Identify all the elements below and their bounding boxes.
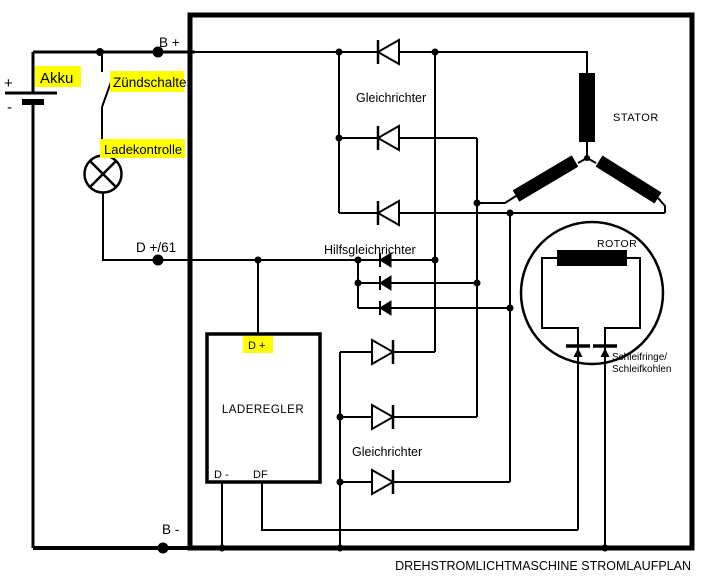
label-schleifkohlen: Schleifkohlen	[612, 364, 671, 375]
diode-icon	[378, 201, 399, 225]
diode-icon	[378, 40, 399, 64]
label-akku: Akku	[40, 70, 73, 87]
junction-dot	[336, 49, 343, 56]
junction-dot	[337, 545, 344, 552]
lamp-cross	[90, 161, 116, 187]
junction-dot	[602, 545, 609, 552]
label-schleifringe: Schleifringe/	[612, 352, 667, 363]
switch-blade	[102, 82, 111, 107]
junction-dot	[507, 210, 514, 217]
diode-icon	[372, 405, 393, 429]
label-d-plus-61: D +/61	[136, 240, 176, 255]
label-battery-plus: +	[4, 75, 13, 92]
label-regulator-df: DF	[253, 469, 268, 481]
small-diode-icon	[380, 276, 391, 290]
label-ladekontrolle: Ladekontrolle	[104, 142, 182, 157]
label-zuendschalter: Zündschalter	[113, 75, 192, 90]
stator-winding-right	[599, 161, 658, 198]
rectifier-bottom	[340, 340, 510, 548]
terminal-dot-b-minus	[158, 543, 169, 554]
junction-dot	[337, 414, 344, 421]
label-hilfsgleichrichter: Hilfsgleichrichter	[324, 243, 416, 257]
junction-dot	[355, 280, 362, 287]
circuit-diagram: B + Akku + - Zündschalter Ladekontrolle …	[0, 0, 705, 577]
battery-symbol	[5, 52, 57, 548]
charge-lamp-icon	[85, 156, 122, 193]
diode-icon	[378, 126, 399, 150]
label-gleichrichter-top: Gleichrichter	[356, 91, 426, 105]
label-regulator-d-plus: D +	[248, 340, 265, 352]
junction-dot	[255, 257, 262, 264]
wire-df-to-rotor	[262, 482, 578, 530]
aux-rectifier	[158, 253, 510, 315]
label-b-minus: B -	[162, 522, 179, 537]
label-laderegler: LADEREGLER	[222, 404, 304, 416]
label-regulator-d-minus: D -	[214, 469, 229, 481]
junction-dot	[432, 49, 439, 56]
diode-icon	[372, 470, 393, 494]
rotor-symbol	[521, 222, 663, 548]
junction-dot	[337, 479, 344, 486]
stator-winding-top	[579, 73, 595, 142]
rotor-winding-bar	[557, 250, 627, 266]
wire-stator-right-to-phase3	[658, 198, 665, 213]
label-gleichrichter-bottom: Gleichrichter	[352, 445, 422, 459]
junction-dot	[336, 135, 343, 142]
junction-dot	[355, 257, 362, 264]
junction-dot	[96, 48, 104, 56]
label-battery-minus: -	[7, 99, 12, 116]
wire-stator-left-to-phase2	[477, 196, 516, 203]
junction-dot	[432, 257, 439, 264]
diode-icon	[372, 340, 393, 364]
arrow-up-icon	[574, 348, 583, 357]
small-diode-icon	[380, 301, 391, 315]
label-stator: STATOR	[613, 112, 659, 124]
diagram-title: DREHSTROMLICHTMASCHINE STROMLAUFPLAN	[395, 559, 691, 573]
terminal-dot-d61	[153, 255, 164, 266]
junction-dot	[584, 155, 590, 161]
label-b-plus: B +	[159, 35, 180, 50]
arrow-up-icon	[601, 348, 610, 357]
junction-dot	[219, 545, 226, 552]
junction-dot	[507, 305, 514, 312]
stator-winding-left	[516, 161, 575, 196]
stator-symbol	[477, 73, 665, 213]
junction-dot	[474, 280, 481, 287]
rotor-coil-outline	[542, 258, 640, 330]
wire-phase1-stator-top	[399, 52, 587, 75]
junction-dots	[96, 47, 609, 554]
label-rotor: ROTOR	[597, 238, 637, 250]
junction-dot	[474, 200, 481, 207]
